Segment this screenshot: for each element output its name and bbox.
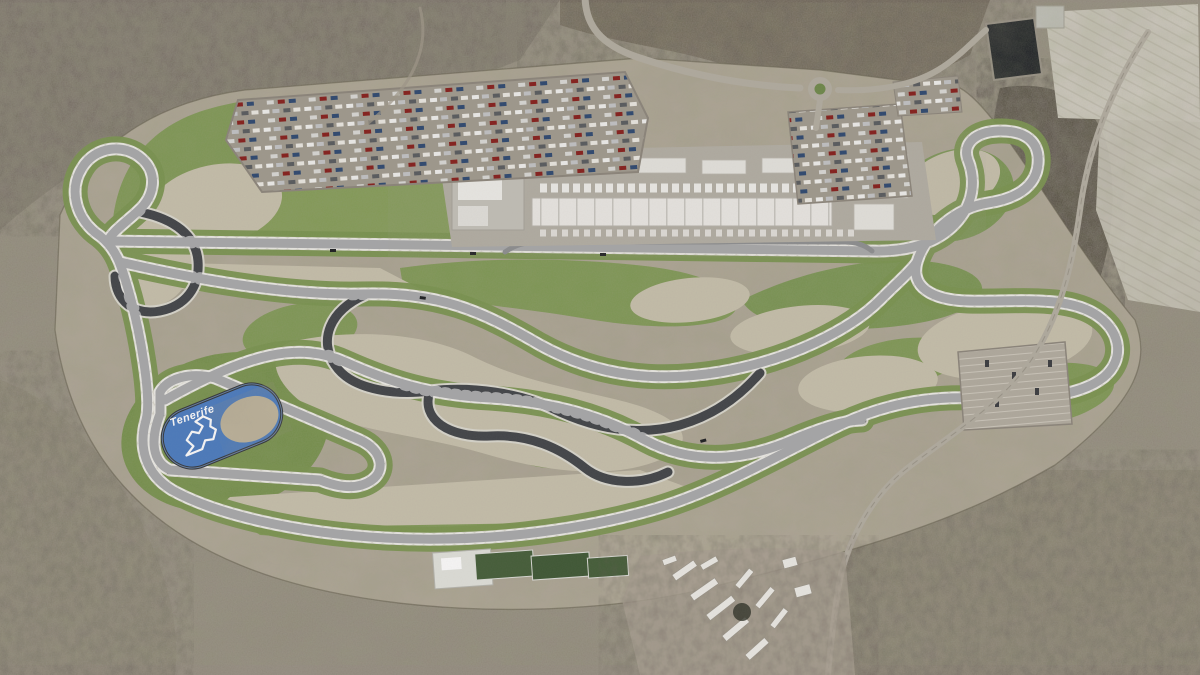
circuit-aerial-render: Tenerife — [0, 0, 1200, 675]
aerial-photo: Tenerife — [0, 0, 1200, 675]
